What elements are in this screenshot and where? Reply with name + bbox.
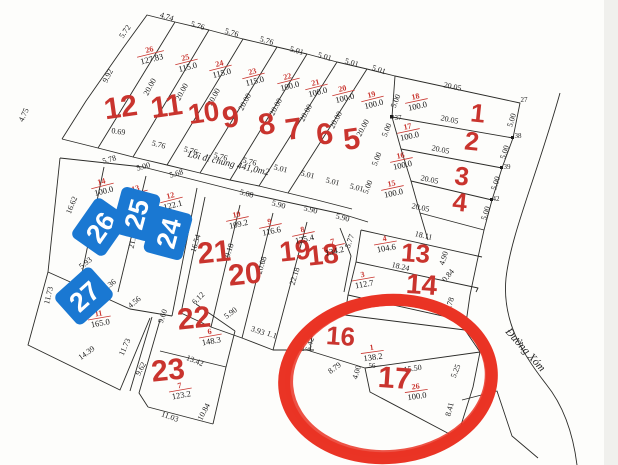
point-number-label: 56 bbox=[369, 362, 377, 370]
dimension-label: 8.41 bbox=[444, 402, 456, 418]
parcel-area: 100.0 bbox=[392, 158, 413, 172]
parcel-area: 115.0 bbox=[211, 66, 232, 80]
parcel-area: 123.2 bbox=[171, 388, 192, 401]
dimension-label: 4.90 bbox=[437, 250, 450, 266]
west-boundary bbox=[48, 158, 60, 272]
dimension-label: 16.62 bbox=[64, 195, 79, 215]
parcel-label: 10109.2 bbox=[224, 208, 250, 231]
parcel-area: 100.0 bbox=[407, 99, 428, 113]
parcel-area: 100.0 bbox=[93, 184, 114, 198]
dimension-label: 13.42 bbox=[185, 353, 205, 368]
dimension-label: 20.05 bbox=[440, 113, 459, 126]
dimension-label: 5.00 bbox=[505, 112, 518, 128]
parcel-area: 109.2 bbox=[228, 217, 249, 231]
plot-number: 2 bbox=[463, 125, 481, 156]
scan-edge-shading bbox=[604, 0, 618, 465]
plot-number: 10 bbox=[186, 95, 221, 130]
dimension-label: 5.90 bbox=[222, 305, 239, 321]
dimension-label: 5.08 bbox=[239, 188, 255, 200]
dimension-label: 5.00 bbox=[370, 151, 384, 167]
point-number-label: 42 bbox=[493, 195, 501, 203]
parcel-label: 14100.0 bbox=[89, 174, 116, 198]
dimension-label: 5.76 bbox=[190, 19, 206, 32]
dimension-label: 3.93 bbox=[250, 324, 266, 337]
parcel-area: 100.0 bbox=[279, 79, 300, 93]
plot-number: 21 bbox=[196, 234, 233, 270]
cadastral-map-svg: 4.745.765.765.765.015.015.015.015.729.92… bbox=[0, 0, 618, 465]
dimension-label: 8.79 bbox=[326, 360, 343, 376]
parcel-area: 104.6 bbox=[376, 241, 397, 254]
dimension-label: 5.00 bbox=[135, 160, 151, 173]
dimension-label: 5.76 bbox=[259, 34, 275, 47]
parcel-label: 4104.6 bbox=[372, 232, 398, 255]
dimension-label: 5.01 bbox=[273, 162, 289, 174]
village-road-curve bbox=[505, 93, 577, 465]
dimension-label: 5.68 bbox=[168, 167, 184, 180]
dimension-label: 5.01 bbox=[349, 181, 365, 193]
dimension-label: 5.90 bbox=[271, 199, 287, 211]
dimension-label: 20.05 bbox=[411, 201, 430, 214]
parcel-label: 3112.7 bbox=[350, 268, 376, 291]
road-label: Đường Xóm bbox=[502, 325, 548, 374]
plot-number: 16 bbox=[325, 320, 356, 352]
parcel-label: 23115.0 bbox=[240, 64, 267, 88]
dimension-label: 4.74 bbox=[159, 10, 175, 23]
parcel-label: 15100.0 bbox=[379, 177, 405, 200]
parcel-area: 127.83 bbox=[139, 51, 164, 66]
dimension-label: 4.75 bbox=[17, 107, 31, 123]
parcel-area: 115.0 bbox=[177, 60, 198, 74]
dimension-label: 5.01 bbox=[325, 175, 341, 187]
dimension-label: 4.56 bbox=[126, 294, 143, 310]
plot-number: 17 bbox=[377, 361, 413, 396]
dimension-label: 5.25 bbox=[449, 363, 463, 379]
dimension-label: 11.03 bbox=[160, 409, 180, 424]
dimension-label: 20.00 bbox=[237, 92, 253, 112]
boundary-point-marker bbox=[390, 115, 394, 119]
dimension-label: 9.92 bbox=[101, 68, 115, 85]
point-number-label: 38 bbox=[515, 132, 523, 140]
parcel-label: 19100.0 bbox=[359, 87, 386, 111]
parcel-area: 165.0 bbox=[90, 316, 111, 329]
plot-27-east-edge bbox=[130, 317, 152, 391]
parcel-label: 25115.0 bbox=[173, 50, 200, 74]
plot-number: 20 bbox=[227, 256, 264, 292]
dimension-label: 5.00 bbox=[479, 205, 492, 221]
parcel-label: 20100.0 bbox=[330, 81, 357, 105]
dimension-label: 5.01 bbox=[344, 56, 360, 69]
parcel-area: 100.0 bbox=[307, 85, 328, 99]
dimension-label: 0.69 bbox=[111, 126, 126, 137]
cadastral-map-page: 4.745.765.765.765.015.015.015.015.729.92… bbox=[0, 0, 618, 465]
dimension-label: 5.01 bbox=[300, 168, 316, 180]
parcel-label: 26127.83 bbox=[135, 42, 166, 67]
parcel-label: 18100.0 bbox=[403, 90, 429, 113]
point-number-label: 27 bbox=[521, 96, 529, 104]
parcel-area: 148.3 bbox=[201, 334, 222, 347]
parcel-area: 100.0 bbox=[383, 186, 404, 200]
dimension-label: 14.39 bbox=[77, 344, 97, 362]
dimension-label: 9.60 bbox=[156, 308, 169, 324]
dimension-label: 11.73 bbox=[117, 337, 132, 357]
parcel-label: 1138.2 bbox=[360, 341, 385, 363]
plot-number: 1 bbox=[469, 97, 487, 128]
dimension-label: 22.18 bbox=[288, 266, 302, 286]
dimension-label: 5.00 bbox=[389, 93, 403, 109]
parcel-area: 100.0 bbox=[334, 91, 355, 105]
parcel-area: 112.7 bbox=[354, 277, 374, 290]
parcel-label: 16100.0 bbox=[388, 149, 414, 172]
plot-number: 13 bbox=[400, 237, 431, 269]
parcel-area: 115.0 bbox=[244, 74, 265, 88]
dimension-label: 5.01 bbox=[317, 50, 333, 63]
top-row-divider bbox=[98, 22, 175, 148]
dimension-label: 9.62 bbox=[134, 361, 149, 378]
dimension-label: 5.00 bbox=[498, 144, 511, 160]
dimension-label: 5.76 bbox=[224, 26, 240, 39]
dimension-label: 5.77 bbox=[343, 233, 356, 249]
dimension-label: 5.01 bbox=[289, 44, 305, 57]
dimension-label: 4.00 bbox=[350, 364, 363, 380]
parcel-label: 17100.0 bbox=[395, 120, 421, 143]
plot-number: 4 bbox=[451, 186, 469, 217]
dimension-label: 5.76 bbox=[151, 138, 167, 150]
plot-23-east-edge bbox=[213, 367, 226, 424]
point-number-label: 37 bbox=[395, 114, 403, 122]
point-number-label: 39 bbox=[504, 163, 512, 171]
parcel-area: 100.0 bbox=[407, 390, 427, 403]
parcel-label: 9116.6 bbox=[257, 215, 283, 238]
plot-number: 12 bbox=[102, 89, 140, 126]
dimension-label: 5.90 bbox=[335, 212, 351, 224]
parcel-area: 116.6 bbox=[261, 224, 281, 238]
dimension-label: 5.01 bbox=[371, 63, 387, 76]
strip-divider bbox=[411, 181, 492, 200]
plot-22-east-edge bbox=[226, 331, 235, 367]
parcel-area: 100.0 bbox=[399, 129, 420, 143]
dimension-label: 5.90 bbox=[303, 204, 319, 216]
plot-number: 11 bbox=[149, 88, 185, 125]
parcel-label: 22100.0 bbox=[275, 69, 302, 93]
parcel-area: 100.0 bbox=[363, 97, 384, 111]
dimension-label: 5.00 bbox=[489, 175, 502, 191]
dimension-label: 5.00 bbox=[380, 122, 394, 138]
dimension-label: 10.84 bbox=[196, 402, 212, 422]
strip-divider bbox=[401, 149, 502, 168]
dimension-label: 0.84 bbox=[440, 267, 456, 284]
dimension-label: 20.05 bbox=[431, 143, 450, 156]
dimension-label: 11.73 bbox=[42, 286, 55, 305]
dimension-label: 20.05 bbox=[443, 80, 462, 93]
